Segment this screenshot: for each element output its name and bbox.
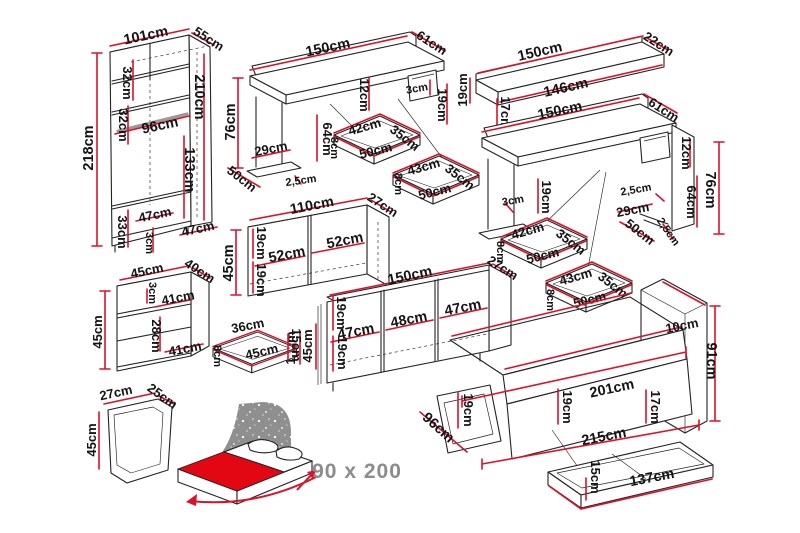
dim-label: 27cm [98, 382, 134, 404]
low-cabinet: 110cm 27cm 45cm 19cm 19cm 52cm 52cm [221, 189, 401, 296]
dim-label: 3cm [143, 232, 155, 254]
dim-label: 19cm [435, 88, 450, 121]
dim-label: 8cm [328, 137, 340, 159]
wardrobe: 101cm 55cm 218cm 32cm 32cm 210cm 96cm 13… [81, 23, 227, 254]
dim-label: 133cm [181, 147, 197, 192]
dim-label: 19cm [539, 180, 554, 213]
dim-label: 91cm [703, 342, 719, 379]
open-shelf: 27cm 25cm 45cm [84, 380, 180, 483]
dim-label: 32cm [120, 66, 135, 99]
bed-size-label: 90 x 200 [312, 460, 402, 483]
dim-label: 3cm [501, 193, 525, 209]
dim-label: 218cm [81, 125, 97, 170]
pillow [276, 447, 302, 460]
dim-label: 76cm [223, 103, 239, 140]
dim-label: 64cm [684, 185, 699, 218]
dim-label: 12cm [357, 78, 372, 111]
dim-label: 8cm [211, 345, 223, 367]
furniture-dimension-diagram: 27cm 25cm 45cm 101cm 55cm 218cm 32cm 32c… [0, 0, 800, 533]
dim-label: 8cm [544, 289, 556, 311]
bed-pictogram: 90 x 200 [178, 402, 402, 506]
dim-label: 50cm [622, 216, 657, 248]
dim-label: 19cm [334, 296, 349, 329]
dim-label: 15cm [289, 328, 304, 361]
underbed-drawer-d: 43cm 35cm 50cm 8cm [544, 262, 632, 312]
underbed-drawer-a: 42cm 35cm 50cm 8cm [328, 114, 423, 164]
dim-label: 45cm [84, 423, 99, 456]
underbed-drawer-b: 43cm 35cm 50cm 8cm [392, 154, 479, 204]
dim-label: 45cm [221, 244, 237, 281]
underbed-drawer-c: 42cm 35cm 50cm 8cm [494, 218, 589, 268]
dim-label: 2,5cm [285, 173, 318, 189]
dim-label: 8cm [392, 173, 404, 195]
dim-label: 19cm [455, 73, 470, 106]
dim-label: 2,5cm [620, 181, 653, 198]
dim-label: 32cm [116, 108, 131, 141]
dim-label: 17cm [648, 390, 663, 423]
diagram-canvas: 27cm 25cm 45cm 101cm 55cm 218cm 32cm 32c… [0, 0, 800, 533]
dim-label: 76cm [702, 171, 718, 208]
dim-label: 15cm [588, 460, 603, 493]
dim-label: 19cm [254, 263, 269, 296]
dim-label: 19cm [461, 393, 476, 426]
bed-drawer: 15cm 137cm [548, 442, 713, 509]
dim-label: 33cm [115, 215, 130, 248]
dim-label: 12cm [679, 136, 694, 169]
dim-label: 3cm [146, 282, 158, 304]
dim-label: 28cm [149, 319, 164, 352]
dim-label: 210cm [191, 74, 207, 119]
dim-label: 19cm [560, 390, 575, 423]
dim-label: 29cm [253, 138, 289, 159]
arrow-head [186, 494, 197, 506]
dim-label: 19cm [254, 226, 269, 259]
dim-label: 45cm [90, 315, 105, 348]
nightstand: 45cm 40cm 45cm 3cm 41cm 28cm 41cm [90, 255, 218, 371]
